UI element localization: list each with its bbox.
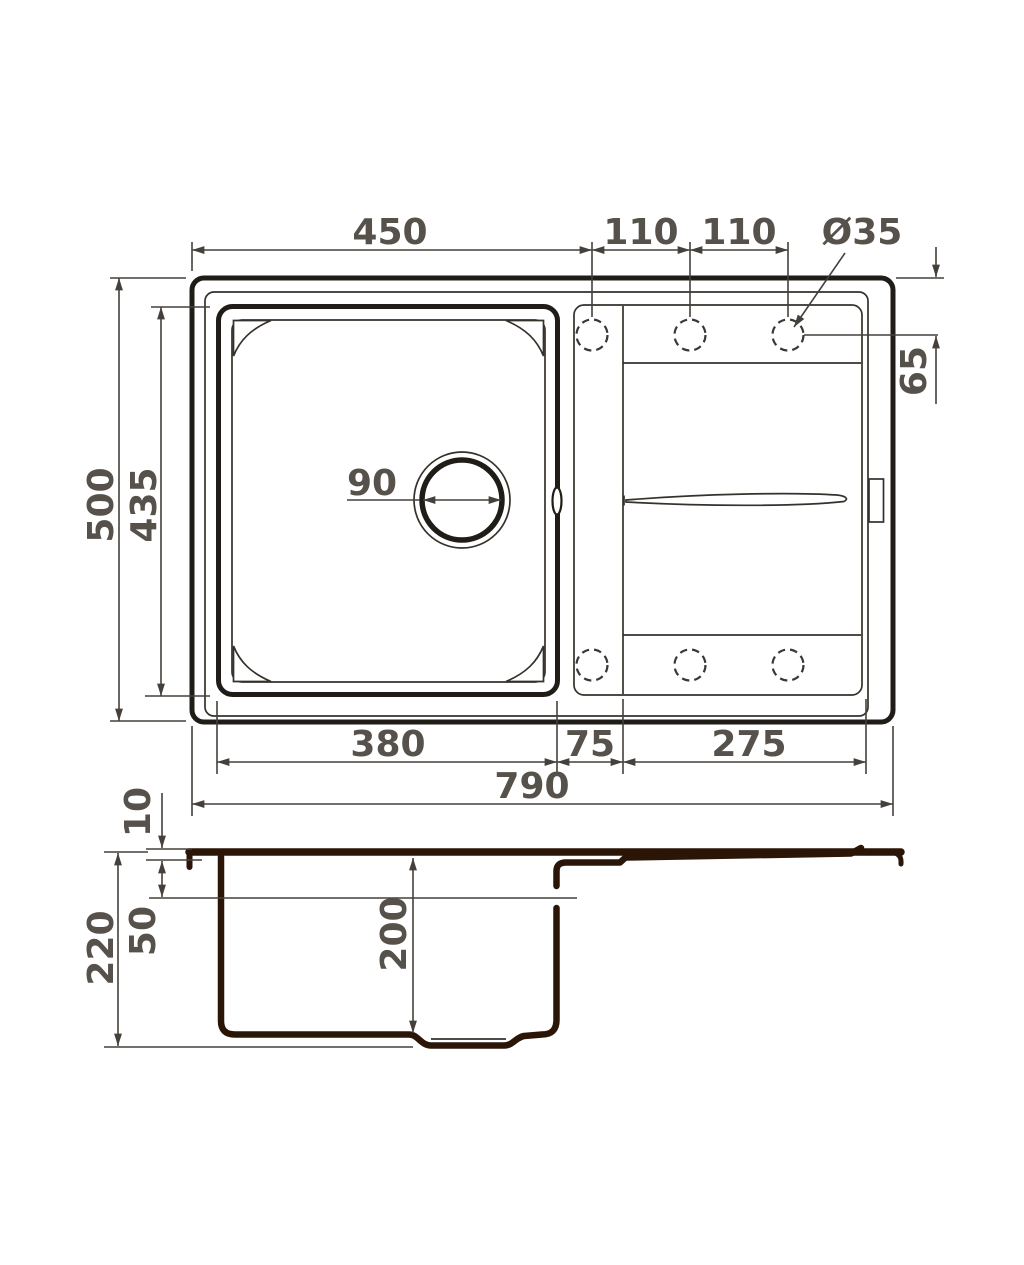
- faucet-hole: [675, 650, 706, 681]
- dimension-790: 790: [192, 766, 893, 807]
- bowl-corner-chamfer-tl: [234, 321, 272, 357]
- drainboard: [574, 305, 884, 695]
- dimension-10: 10: [118, 787, 162, 848]
- dimension-75: 75: [557, 724, 623, 765]
- dimension-500: 500: [81, 278, 122, 721]
- dim-label-10: 10: [118, 787, 159, 837]
- dim-label-450: 450: [352, 212, 427, 253]
- faucet-hole: [773, 320, 804, 351]
- dimension-65: 65: [894, 247, 936, 404]
- sink-drawing: 450 110 110 Ø35 65 500 435: [0, 0, 1024, 1265]
- dim-label-dia35: Ø35: [822, 212, 903, 253]
- technical-drawing-page: 450 110 110 Ø35 65 500 435: [0, 0, 1024, 1265]
- top-view: 450 110 110 Ø35 65 500 435: [81, 212, 944, 816]
- dim-label-75: 75: [565, 724, 615, 765]
- dimension-200: 200: [374, 858, 415, 1033]
- faucet-hole: [773, 650, 804, 681]
- dimension-110-first: 110: [592, 212, 690, 253]
- edge-notch: [869, 479, 884, 522]
- dim-label-275: 275: [711, 724, 786, 765]
- dimension-450: 450: [192, 212, 592, 253]
- dimension-275: 275: [623, 724, 866, 765]
- dim-label-65: 65: [894, 346, 935, 396]
- dim-label-380: 380: [350, 724, 425, 765]
- dim-label-220: 220: [81, 910, 122, 985]
- faucet-hole: [577, 650, 608, 681]
- dim-label-200: 200: [374, 896, 415, 971]
- dim-label-500: 500: [81, 467, 122, 542]
- dimension-435: 435: [124, 307, 165, 696]
- dim-label-110-second: 110: [701, 212, 776, 253]
- dim-label-435: 435: [124, 467, 165, 542]
- faucet-hole: [577, 320, 608, 351]
- dimension-50: 50: [123, 861, 164, 956]
- dim-label-50: 50: [123, 906, 164, 956]
- dimension-220: 220: [81, 853, 122, 1046]
- dim-label-790: 790: [494, 766, 569, 807]
- drainboard-groove: [626, 494, 846, 506]
- bowl-corner-chamfer-tr: [506, 321, 544, 357]
- dimension-hole-diameter: Ø35: [794, 212, 902, 327]
- overflow-notch: [553, 488, 562, 515]
- side-view: 10 50 220 200: [81, 787, 901, 1047]
- dimension-110-second: 110: [690, 212, 788, 253]
- faucet-hole: [675, 320, 706, 351]
- bowl-corner-chamfer-br: [506, 646, 544, 682]
- side-profile: [149, 848, 901, 1046]
- bowl-corner-chamfer-bl: [234, 646, 272, 682]
- bowl-profile: [221, 848, 861, 1046]
- dimension-380: 380: [217, 724, 557, 765]
- dim-label-90: 90: [347, 463, 397, 504]
- rim-right-edge: [897, 854, 901, 864]
- dim-label-110-first: 110: [603, 212, 678, 253]
